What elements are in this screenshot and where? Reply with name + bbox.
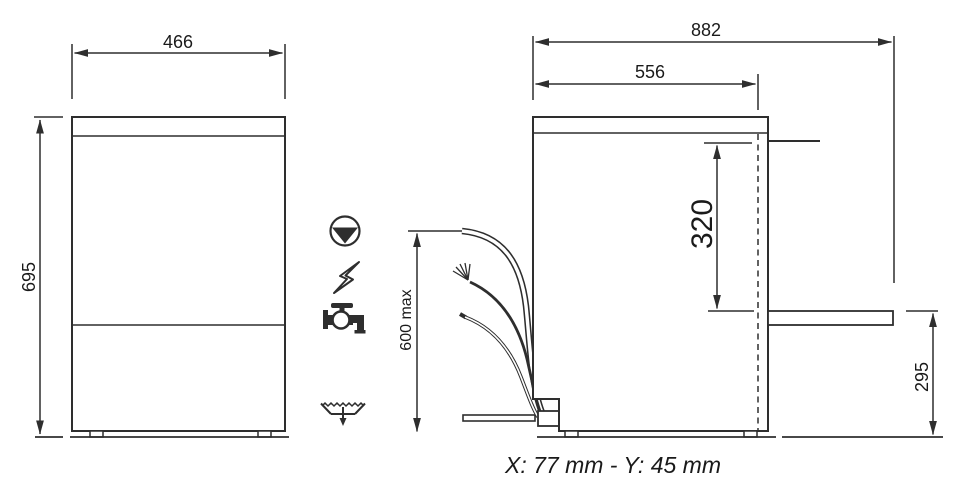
drain-pump-icon	[331, 217, 360, 246]
dishwasher-installation-diagram: 466 695	[0, 0, 969, 496]
caption-text: X: 77 mm - Y: 45 mm	[504, 452, 721, 478]
technical-drawing-page: 466 695	[0, 0, 969, 496]
floor-drain-icon	[321, 403, 365, 426]
frayed-wires-icon	[453, 263, 470, 280]
front-height-label: 695	[19, 262, 39, 292]
outlet-height-dimension: 295	[906, 311, 938, 435]
water-inlet-pipe	[463, 415, 535, 421]
hose-length-label: 600 max	[398, 289, 415, 350]
outlet-height-label: 295	[912, 362, 932, 392]
front-cabinet	[35, 117, 289, 437]
front-view: 466 695	[19, 32, 289, 437]
cabinet-outline	[72, 117, 285, 431]
body-depth-dimension: 556	[536, 62, 759, 110]
electricity-icon	[334, 262, 359, 293]
rear-clearance-label: 320	[686, 199, 719, 249]
overall-depth-label: 882	[691, 20, 721, 40]
front-width-label: 466	[163, 32, 193, 52]
water-tap-icon	[323, 303, 366, 334]
utility-icons	[321, 217, 366, 427]
side-view: 882 556 320 295	[533, 20, 943, 437]
side-cabinet-outline	[533, 117, 768, 431]
connection-block	[538, 411, 559, 426]
body-depth-label: 556	[635, 62, 665, 82]
front-width-dimension: 466	[72, 32, 285, 99]
front-height-dimension: 695	[19, 117, 63, 434]
drain-outlet-pipe	[768, 311, 893, 325]
hose-length-dimension: 600 max	[398, 231, 462, 432]
